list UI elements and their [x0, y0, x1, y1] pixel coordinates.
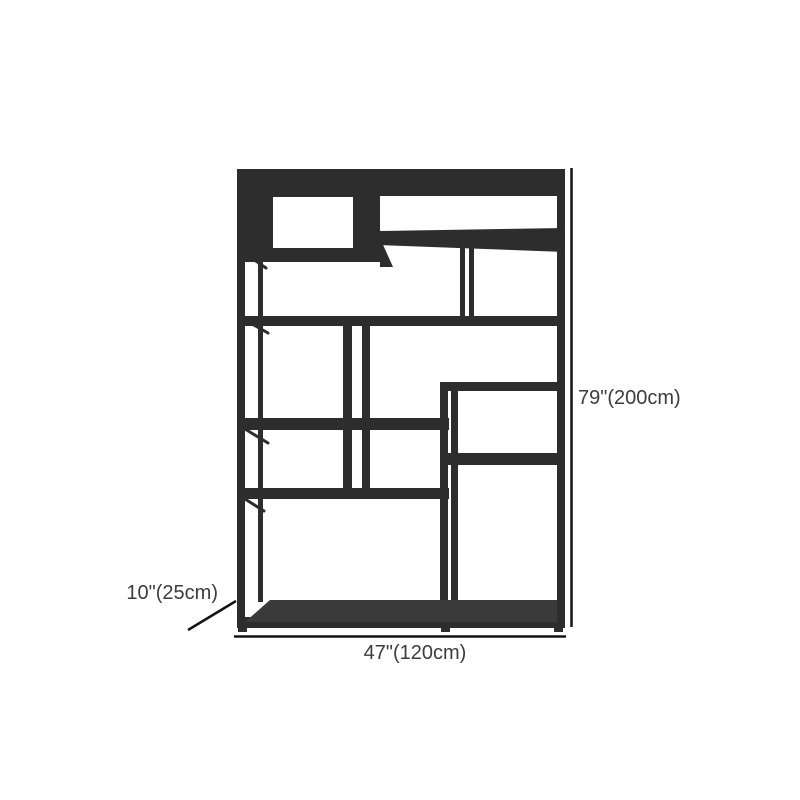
depth-dimension-label: 10"(25cm) — [126, 582, 218, 604]
upper-divider-back — [469, 246, 474, 320]
lower-left-shelf — [237, 488, 449, 499]
foot-left — [238, 628, 247, 632]
height-dimension-label: 79"(200cm) — [578, 387, 681, 409]
shelf-surfaces — [245, 600, 557, 622]
bookshelf-diagram-svg: 79"(200cm) 47"(120cm) 10"(25cm) — [0, 0, 800, 800]
product-dimension-diagram: 79"(200cm) 47"(120cm) 10"(25cm) — [0, 0, 800, 800]
depth-pointer-line — [188, 601, 236, 630]
right-box-wall-back — [451, 382, 458, 602]
edge-under-left-mid-shelf — [245, 429, 268, 443]
mid-shelf — [237, 316, 565, 326]
right-box-bottom — [440, 453, 565, 465]
width-dimension-label: 47"(120cm) — [364, 642, 467, 664]
right-box-top — [440, 382, 565, 391]
perspective-edges — [243, 252, 268, 511]
foot-right — [554, 628, 563, 632]
center-post-back — [362, 326, 370, 490]
center-post-front — [343, 326, 352, 490]
foot-middle — [441, 628, 450, 632]
top-left-box-opening — [273, 197, 353, 248]
upper-divider-front — [460, 246, 465, 320]
floor-surface — [245, 600, 557, 622]
left-mid-shelf — [237, 418, 449, 430]
